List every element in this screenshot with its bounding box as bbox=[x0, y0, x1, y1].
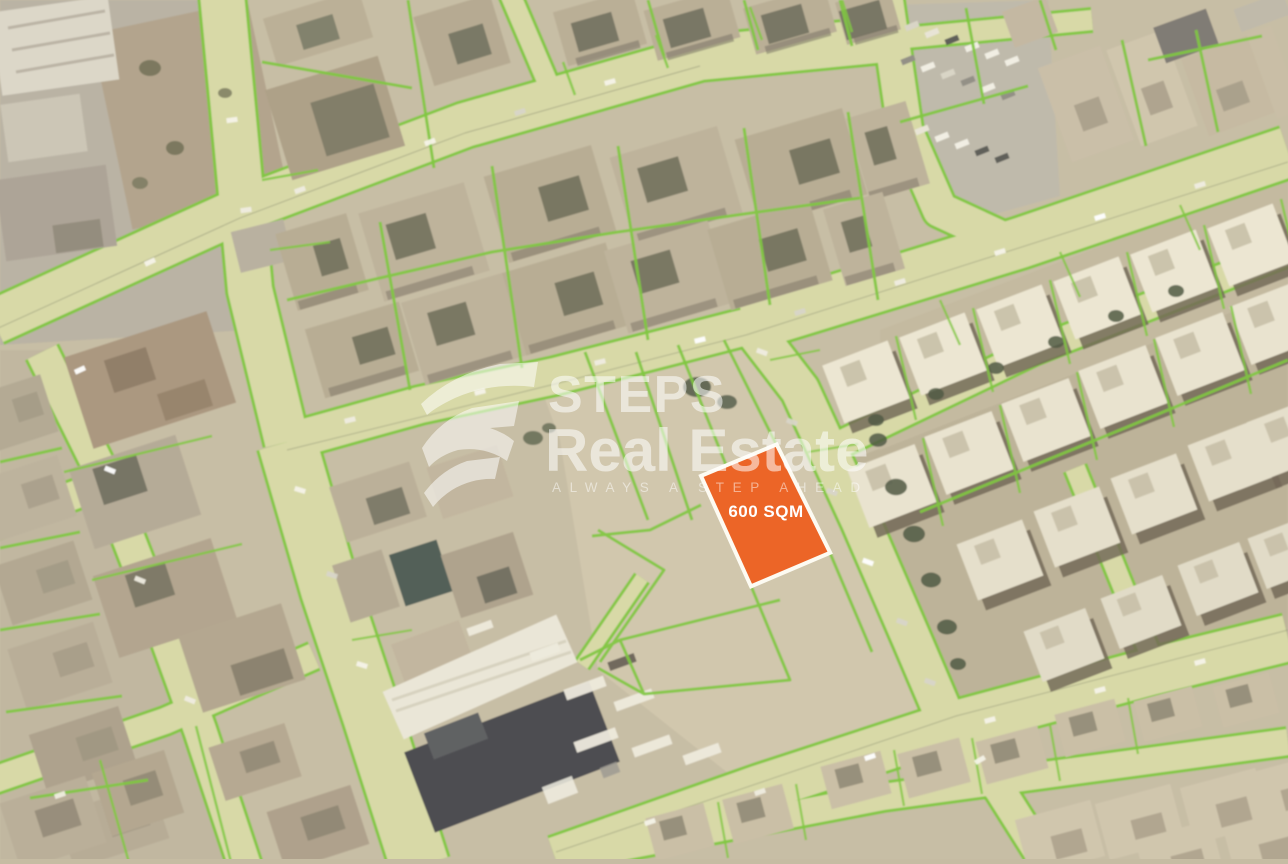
svg-text:STEPS: STEPS bbox=[548, 366, 726, 424]
svg-text:Real Estate: Real Estate bbox=[545, 417, 869, 484]
svg-text:ALWAYS A STEP AHEAD: ALWAYS A STEP AHEAD bbox=[552, 480, 869, 495]
svg-text:600 SQM: 600 SQM bbox=[728, 502, 803, 521]
